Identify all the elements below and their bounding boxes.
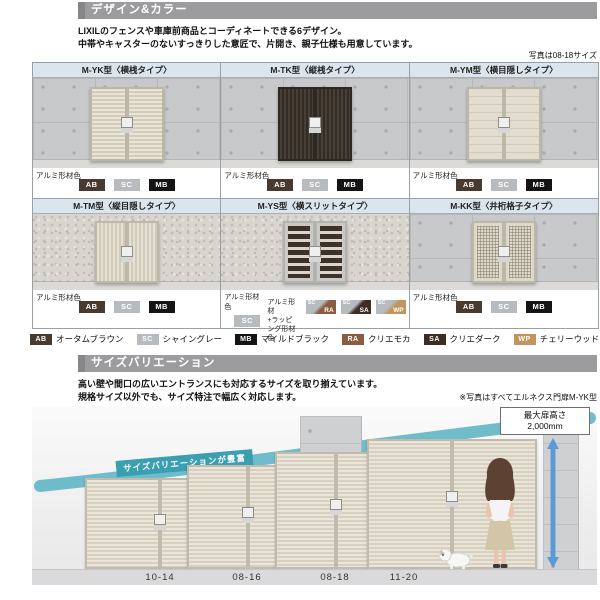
color-chip: AB xyxy=(456,301,482,313)
gate-handle xyxy=(121,246,133,257)
gate-handle xyxy=(309,246,321,257)
model-cell-m-tk: M-TK型〈縦桟タイプ〉 アルミ形材色 AB SC MB xyxy=(221,63,409,199)
legend-item-wp: WPチェリーウッド xyxy=(514,333,600,345)
design-intro-line1: LIXILのフェンスや車庫前商品とコーディネートできる6デザイン。 xyxy=(78,25,346,38)
legend-item-sc: SCシャイングレー xyxy=(137,333,223,345)
color-chip: MB xyxy=(526,179,552,191)
door-photo-m-tm xyxy=(33,214,220,290)
model-cell-m-ym: M-YM型〈横目隠しタイプ〉 アルミ形材色 AB SC MB xyxy=(410,63,598,199)
door-photo-m-ys xyxy=(221,214,408,290)
size-intro-line1: 高い壁や間口の広いエントランスにも対応するサイズを取り揃えています。 xyxy=(78,378,382,391)
size-label-08-16: 08-16 xyxy=(232,572,261,583)
color-chip: SC xyxy=(114,179,140,191)
catalog-page: デザイン&カラー LIXILのフェンスや車庫前商品とコーディネートできる6デザイ… xyxy=(0,0,600,600)
gate-m-yk xyxy=(90,87,164,161)
color-row: アルミ形材色 AB SC MB xyxy=(221,168,408,198)
size-intro-line2: 規格サイズ以外でも、サイズ特注で幅広く対応します。 xyxy=(78,391,301,404)
height-arrow-icon xyxy=(546,438,560,568)
wrap-color-chip: SC RA xyxy=(306,300,336,314)
gate-m-ym xyxy=(467,87,541,161)
color-chip: SC xyxy=(491,301,517,313)
woman-figure xyxy=(470,456,530,569)
gate-handle xyxy=(121,117,133,128)
door-photo-m-ym xyxy=(410,78,598,168)
color-chip: MB xyxy=(337,179,363,191)
color-legend: ABオータムブラウン SCシャイングレー MBマイルドブラック RAクリエモカ … xyxy=(30,333,599,345)
gate-m-tm xyxy=(95,221,159,283)
color-chip: AB xyxy=(79,301,105,313)
legend-item-mb: MBマイルドブラック xyxy=(235,333,329,345)
size-section-header: サイズバリエーション xyxy=(78,355,597,372)
size-label-10-14: 10-14 xyxy=(145,572,174,583)
size-photo-note: ※写真はすべてエルネクス門扉M-YK型 xyxy=(459,392,597,403)
design-section-header: デザイン&カラー xyxy=(78,2,597,19)
gate-m-tk xyxy=(278,87,352,161)
material-label: アルミ形材色 xyxy=(224,292,260,312)
model-cell-m-kk: M-KK型〈井桁格子タイプ〉 アルミ形材色 AB SC MB xyxy=(410,199,598,328)
model-title: M-YS型〈横スリットタイプ〉 xyxy=(221,199,408,214)
color-chip: SC xyxy=(491,179,517,191)
gate-m-kk xyxy=(472,221,536,283)
model-title: M-YK型〈横桟タイプ〉 xyxy=(33,63,220,78)
size-label-08-18: 08-18 xyxy=(320,572,349,583)
color-chip: SC xyxy=(234,315,260,327)
color-row-ys: アルミ形材色 SC アルミ形材 +ラッピング形材色 SC RA SC SA xyxy=(221,290,408,328)
model-title: M-TM型〈縦目隠しタイプ〉 xyxy=(33,199,220,214)
ground-strip xyxy=(32,569,597,585)
door-photo-m-kk xyxy=(410,214,598,290)
size-label-11-20: 11-20 xyxy=(390,572,419,583)
color-chip: SC xyxy=(114,301,140,313)
wrap-color-chip: SC SA xyxy=(341,300,371,314)
color-row: アルミ形材色 AB SC MB xyxy=(33,168,220,198)
color-chip: MB xyxy=(149,179,175,191)
color-row: アルミ形材色 AB SC MB xyxy=(410,168,598,198)
color-chip: MB xyxy=(526,301,552,313)
color-chip: AB xyxy=(456,179,482,191)
gate-handle xyxy=(498,117,510,128)
max-height-callout: 最大扉高さ 2,000mm xyxy=(500,407,590,435)
gate-handle xyxy=(330,499,342,510)
gate-handle xyxy=(309,117,321,128)
color-row: アルミ形材色 AB SC MB xyxy=(33,290,220,328)
design-photo-note: 写真は08-18サイズ xyxy=(529,50,597,61)
wrap-color-chip: SC WP xyxy=(376,300,406,314)
model-cell-m-ys: M-YS型〈横スリットタイプ〉 アルミ形材色 SC アルミ形材 +ラッピング形材… xyxy=(221,199,409,328)
model-cell-m-tm: M-TM型〈縦目隠しタイプ〉 アルミ形材色 AB SC MB xyxy=(33,199,221,328)
gate-handle xyxy=(242,507,254,518)
model-title: M-KK型〈井桁格子タイプ〉 xyxy=(410,199,598,214)
legend-item-sa: SAクリエダーク xyxy=(424,333,501,345)
size-illustration: サイズバリエーションが豊富 最大扉高さ 2,000mm xyxy=(32,406,597,585)
design-grid: M-YK型〈横桟タイプ〉 アルミ形材色 AB SC MB M-TK型〈縦桟タイプ… xyxy=(32,62,599,329)
color-chip: AB xyxy=(79,179,105,191)
color-row: アルミ形材色 AB SC MB xyxy=(410,290,598,328)
design-intro-line2: 中帯やキャスターのないすっきりした意匠で、片開き、親子仕様も用意しています。 xyxy=(78,38,417,51)
model-cell-m-yk: M-YK型〈横桟タイプ〉 アルミ形材色 AB SC MB xyxy=(33,63,221,199)
door-photo-m-yk xyxy=(33,78,220,168)
legend-item-ra: RAクリエモカ xyxy=(342,333,411,345)
gate-handle xyxy=(498,246,510,257)
color-chip: MB xyxy=(149,301,175,313)
color-chip: SC xyxy=(302,179,328,191)
door-photo-m-tk xyxy=(221,78,408,168)
legend-item-ab: ABオータムブラウン xyxy=(30,333,124,345)
model-title: M-TK型〈縦桟タイプ〉 xyxy=(221,63,408,78)
model-title: M-YM型〈横目隠しタイプ〉 xyxy=(410,63,598,78)
gate-handle xyxy=(446,491,458,502)
gate-handle xyxy=(154,514,166,525)
color-chip: AB xyxy=(267,179,293,191)
gate-m-ys xyxy=(283,221,347,283)
dog-figure xyxy=(438,546,474,570)
